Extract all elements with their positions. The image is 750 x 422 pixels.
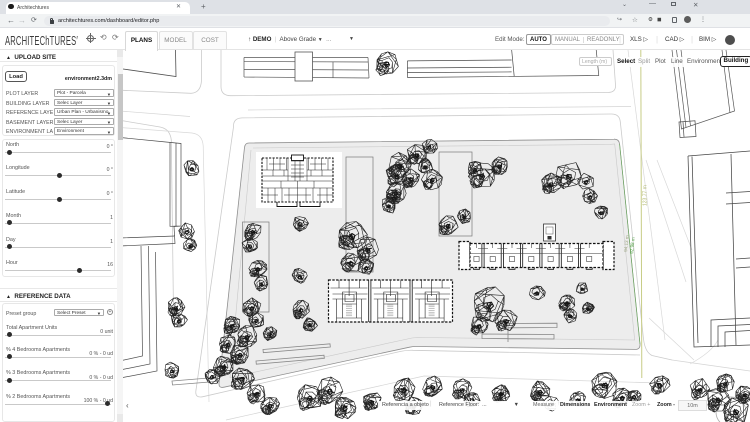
svg-text:92.98 m: 92.98 m (629, 237, 636, 254)
svg-text:123.77 m: 123.77 m (643, 185, 649, 206)
